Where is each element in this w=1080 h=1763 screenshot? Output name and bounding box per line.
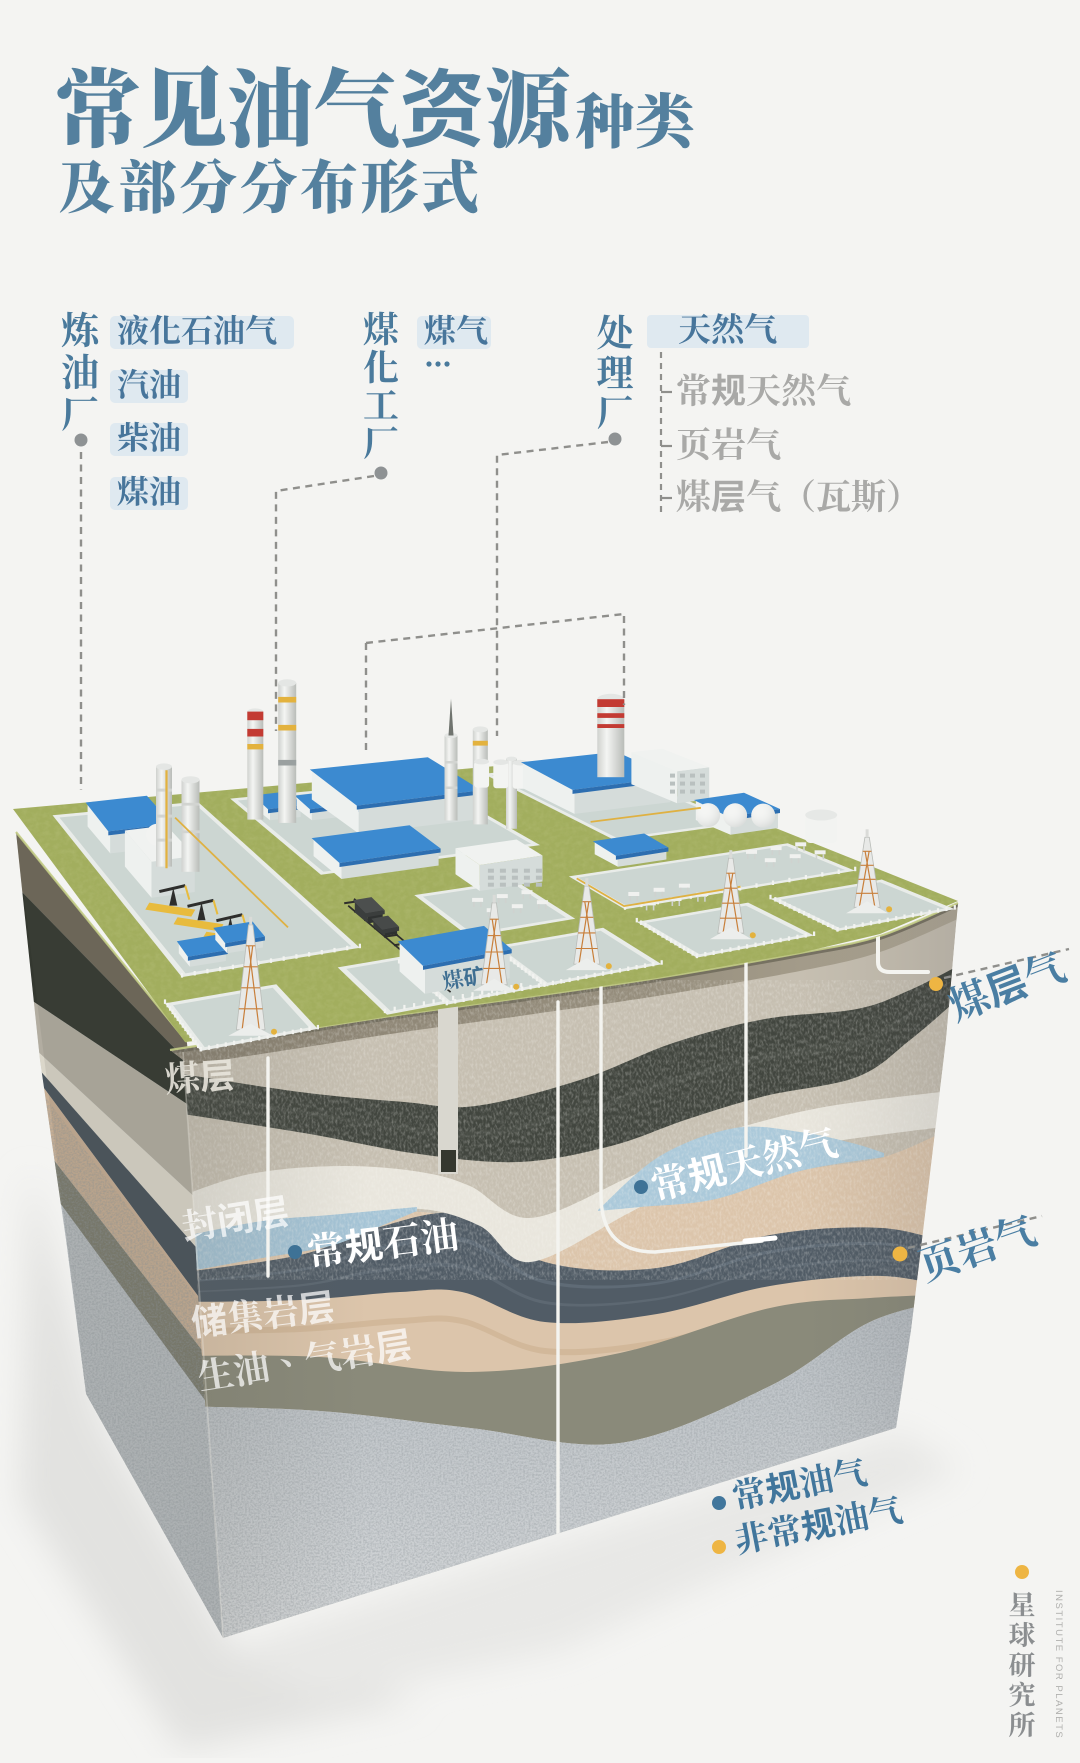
svg-text:INSTITUTE FOR PLANETS: INSTITUTE FOR PLANETS: [1053, 1590, 1064, 1739]
